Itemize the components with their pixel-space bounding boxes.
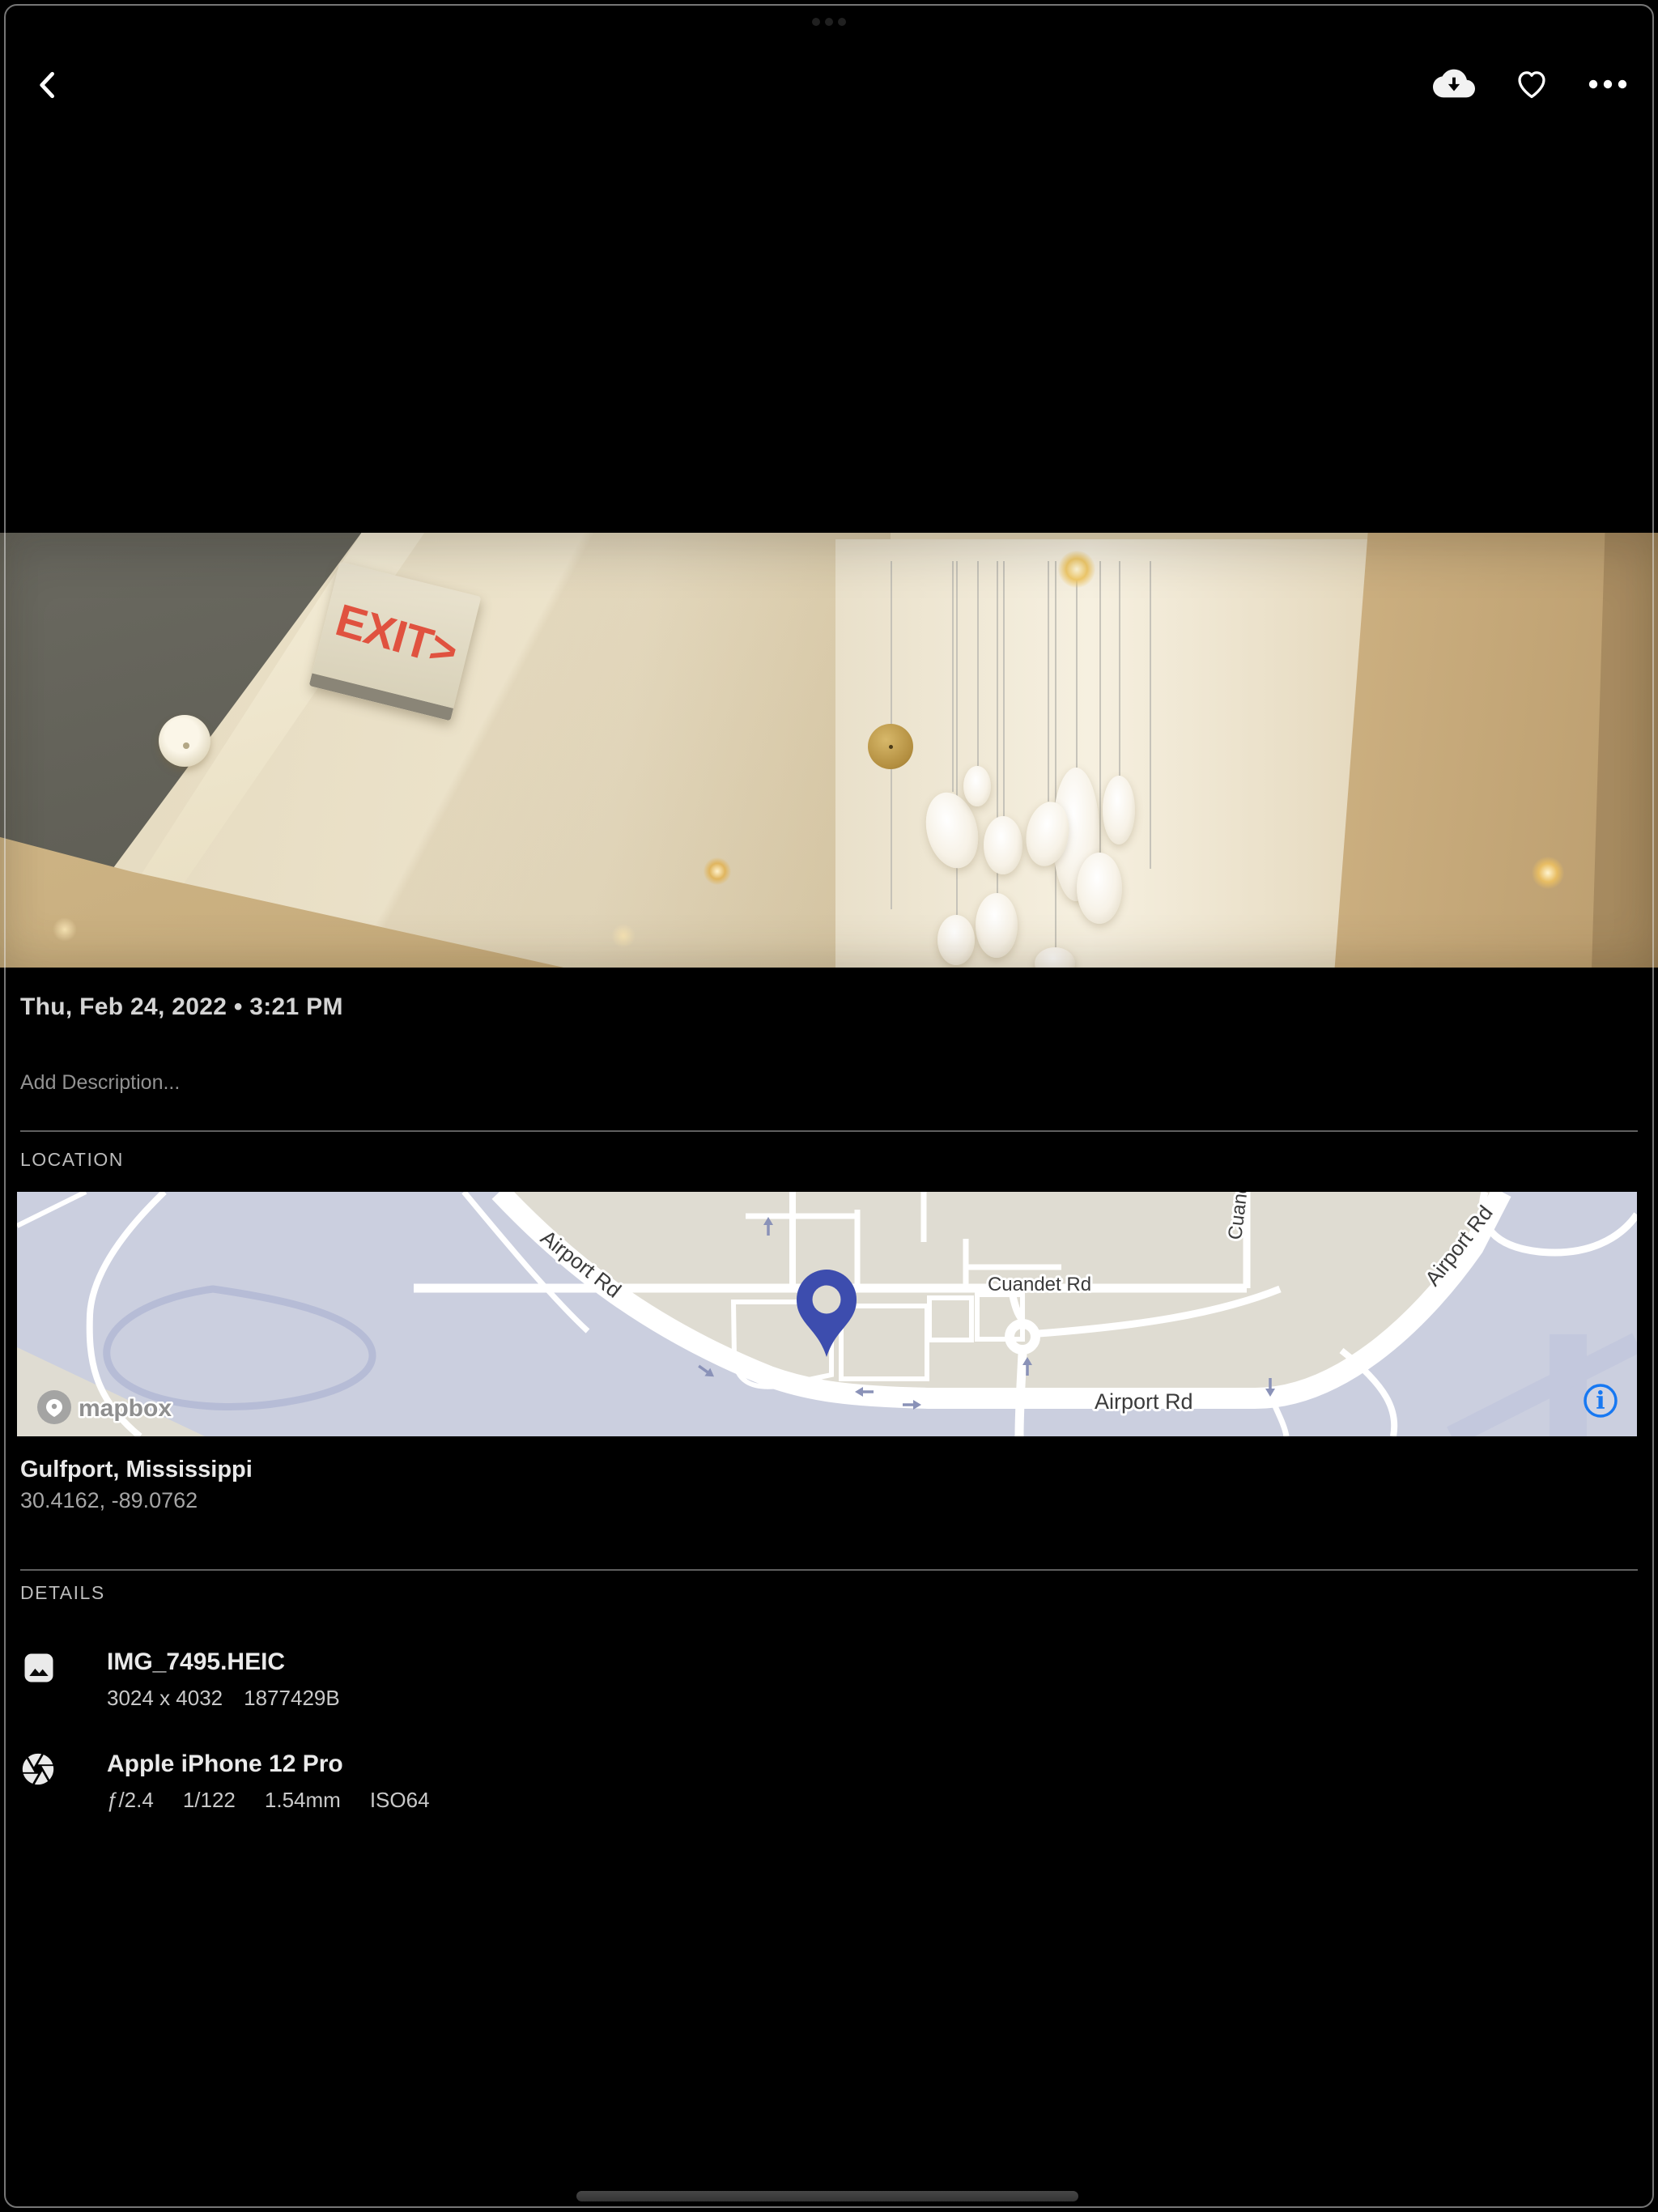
datetime-label: Thu, Feb 24, 2022 • 3:21 PM bbox=[20, 993, 343, 1021]
exif-aperture: ƒ/2.4 bbox=[107, 1788, 154, 1812]
lamp-wire bbox=[1150, 561, 1151, 869]
file-info: 3024 x 40321877429B bbox=[107, 1686, 340, 1711]
pendant-lamp bbox=[976, 893, 1018, 958]
pendant-lamp bbox=[1035, 947, 1075, 968]
photo-ceiling-shading bbox=[0, 533, 891, 968]
lamp-wire bbox=[1076, 561, 1078, 768]
file-row-icon bbox=[23, 1653, 55, 1686]
exif-iso: ISO64 bbox=[370, 1788, 430, 1812]
exit-sign-text: EXIT> bbox=[330, 593, 463, 677]
lamp-wire bbox=[956, 561, 958, 915]
photo-detail-page: EXIT> Thu, Feb 24, 2022 • 3:21 PM Add De… bbox=[0, 0, 1658, 2212]
photo-lower-wall bbox=[0, 533, 1658, 968]
file-dimensions: 3024 x 4032 bbox=[107, 1686, 223, 1710]
pendant-lamp bbox=[918, 787, 985, 874]
recessed-light bbox=[53, 917, 77, 942]
road-label-airport-bottom: Airport Rd bbox=[1095, 1389, 1193, 1414]
heart-icon bbox=[1513, 65, 1550, 106]
recessed-light bbox=[704, 857, 731, 885]
ellipsis-icon bbox=[1585, 76, 1630, 96]
photo-right-edge-shadow bbox=[0, 533, 1658, 968]
app-switcher-grabber[interactable] bbox=[812, 18, 846, 26]
ceiling-gold-disc bbox=[868, 724, 913, 769]
location-header: LOCATION bbox=[20, 1149, 124, 1171]
back-button[interactable] bbox=[29, 67, 68, 106]
photo-preview[interactable]: EXIT> bbox=[0, 533, 1658, 968]
grabber-dot bbox=[825, 18, 833, 26]
photo-ceiling-beam bbox=[0, 533, 1658, 968]
exit-sign: EXIT> bbox=[309, 562, 482, 721]
lamp-wire bbox=[952, 561, 954, 792]
image-icon bbox=[23, 1652, 55, 1688]
screen-frame-border bbox=[4, 4, 1654, 2208]
lamp-wire bbox=[997, 561, 998, 893]
pendant-lamp bbox=[1021, 798, 1073, 870]
download-button[interactable] bbox=[1432, 64, 1476, 106]
mapbox-wordmark: mapbox bbox=[79, 1395, 172, 1422]
cloud-download-icon bbox=[1433, 62, 1475, 108]
section-divider bbox=[20, 1130, 1638, 1132]
exit-sign-plate: EXIT> bbox=[309, 562, 482, 721]
file-size: 1877429B bbox=[244, 1686, 340, 1710]
mapbox-attribution[interactable]: mapbox bbox=[37, 1390, 172, 1424]
file-name: IMG_7495.HEIC bbox=[107, 1648, 285, 1676]
lamp-wire bbox=[1048, 561, 1049, 802]
pendant-lamp bbox=[1052, 768, 1099, 901]
location-map[interactable]: Airport Rd Cuandet Rd Airport Rd Cuandet… bbox=[17, 1192, 1637, 1436]
map-info-button[interactable]: i bbox=[1585, 1385, 1616, 1416]
column-capital bbox=[835, 539, 1401, 968]
description-input[interactable]: Add Description... bbox=[20, 1071, 180, 1095]
camera-exif: ƒ/2.41/1221.54mmISO64 bbox=[107, 1788, 430, 1813]
lamp-wire bbox=[1055, 561, 1056, 947]
photo-atrium bbox=[835, 539, 1401, 968]
photo-dark-wall bbox=[0, 533, 1658, 968]
pendant-lamp bbox=[1103, 776, 1135, 844]
atrium-white-wall bbox=[835, 539, 1401, 968]
coordinates-label: 30.4162, -89.0762 bbox=[20, 1488, 198, 1513]
lamp-wire bbox=[891, 561, 892, 909]
favorite-button[interactable] bbox=[1512, 66, 1551, 104]
white-column bbox=[835, 539, 1401, 968]
lamp-wire bbox=[1099, 561, 1101, 853]
lamp-wire bbox=[1119, 561, 1120, 776]
info-icon-glyph: i bbox=[1596, 1387, 1605, 1415]
home-indicator[interactable] bbox=[576, 2191, 1078, 2201]
exif-focal-length: 1.54mm bbox=[265, 1788, 341, 1812]
grabber-dot bbox=[812, 18, 820, 26]
section-divider bbox=[20, 1569, 1638, 1571]
lamp-wire bbox=[977, 561, 979, 766]
recessed-light bbox=[1058, 551, 1095, 588]
camera-row-icon bbox=[19, 1752, 57, 1789]
road-label-cuandet: Cuandet Rd bbox=[988, 1274, 1091, 1295]
place-label: Gulfport, Mississippi bbox=[20, 1457, 253, 1483]
pendant-lamp bbox=[984, 816, 1022, 874]
recessed-light bbox=[1532, 857, 1564, 889]
pendant-lamp bbox=[1077, 853, 1122, 924]
grabber-dot bbox=[838, 18, 846, 26]
photo-right-wall bbox=[0, 533, 1658, 968]
camera-model: Apple iPhone 12 Pro bbox=[107, 1750, 343, 1778]
exif-shutter: 1/122 bbox=[183, 1788, 236, 1812]
atrium-gray-ceiling bbox=[835, 539, 1401, 968]
recessed-light bbox=[611, 924, 636, 948]
aperture-icon bbox=[19, 1750, 57, 1792]
lamp-wire bbox=[1003, 561, 1005, 816]
pendant-lamp bbox=[963, 766, 991, 806]
pendant-lamp bbox=[937, 915, 975, 965]
atrium-clerestory-windows bbox=[835, 539, 1401, 968]
details-header: DETAILS bbox=[20, 1582, 105, 1604]
chevron-left-icon bbox=[31, 67, 66, 107]
more-options-button[interactable] bbox=[1585, 78, 1630, 94]
smoke-detector bbox=[159, 715, 210, 767]
